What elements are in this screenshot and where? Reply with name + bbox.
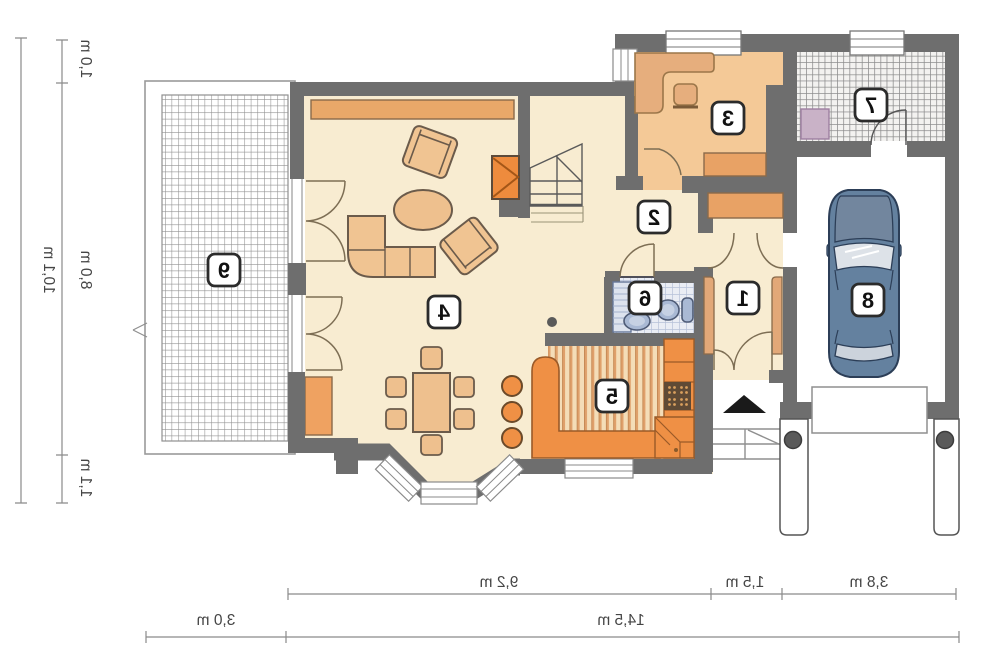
svg-text:1,5 m: 1,5 m [726,574,765,591]
svg-text:8,0 m: 8,0 m [77,251,94,290]
svg-text:8: 8 [862,288,874,313]
svg-text:1,0 m: 1,0 m [77,40,94,79]
svg-text:9: 9 [218,258,230,283]
svg-text:2: 2 [648,205,660,230]
svg-text:1,1 m: 1,1 m [77,459,94,498]
svg-text:7: 7 [865,93,877,118]
svg-text:3,8 m: 3,8 m [850,574,889,591]
svg-text:5: 5 [606,384,618,409]
svg-text:10,1 m: 10,1 m [40,246,57,293]
svg-text:6: 6 [639,286,651,311]
svg-text:14,5 m: 14,5 m [597,612,644,629]
svg-text:4: 4 [437,300,450,325]
svg-text:3,0 m: 3,0 m [197,612,236,629]
svg-text:9,2 m: 9,2 m [480,574,519,591]
svg-text:3: 3 [722,106,734,131]
svg-text:1: 1 [737,286,749,311]
